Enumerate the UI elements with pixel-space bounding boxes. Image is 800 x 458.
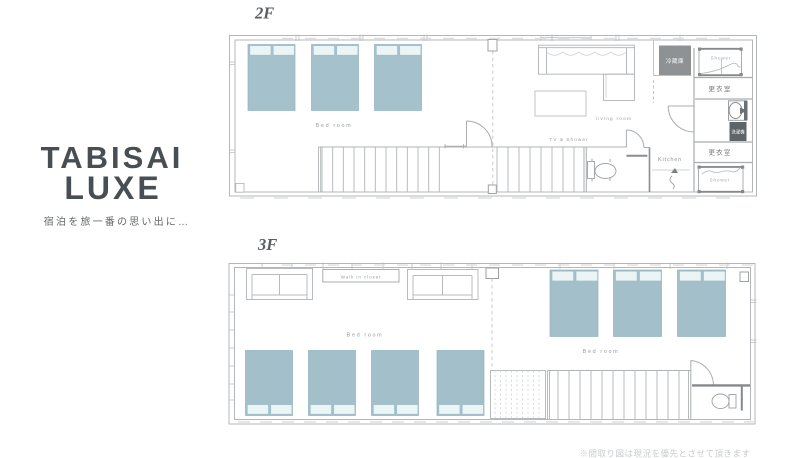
svg-text:Shower: Shower xyxy=(711,56,732,61)
svg-text:更衣室: 更衣室 xyxy=(708,84,731,93)
svg-text:洗濯機: 洗濯機 xyxy=(731,129,745,136)
svg-text:Walk in closet: Walk in closet xyxy=(341,275,382,280)
svg-text:更衣室: 更衣室 xyxy=(708,148,731,157)
svg-text:Bed room: Bed room xyxy=(347,333,384,339)
svg-text:LUXE: LUXE xyxy=(64,170,161,206)
svg-text:※間取り図は現況を優先とさせて頂きます: ※間取り図は現況を優先とさせて頂きます xyxy=(579,449,750,458)
svg-text:冷蔵庫: 冷蔵庫 xyxy=(666,57,684,65)
svg-text:Bed room: Bed room xyxy=(316,123,353,129)
svg-text:TV & Shower: TV & Shower xyxy=(549,137,588,143)
svg-text:Bed room: Bed room xyxy=(583,349,620,355)
svg-text:宿泊を旅一番の思い出に…: 宿泊を旅一番の思い出に… xyxy=(44,215,190,228)
svg-text:3F: 3F xyxy=(257,235,277,254)
svg-text:2F: 2F xyxy=(254,4,274,23)
svg-text:Kitchen: Kitchen xyxy=(658,157,682,163)
svg-text:living room: living room xyxy=(596,116,632,122)
svg-text:Shower: Shower xyxy=(710,178,731,183)
